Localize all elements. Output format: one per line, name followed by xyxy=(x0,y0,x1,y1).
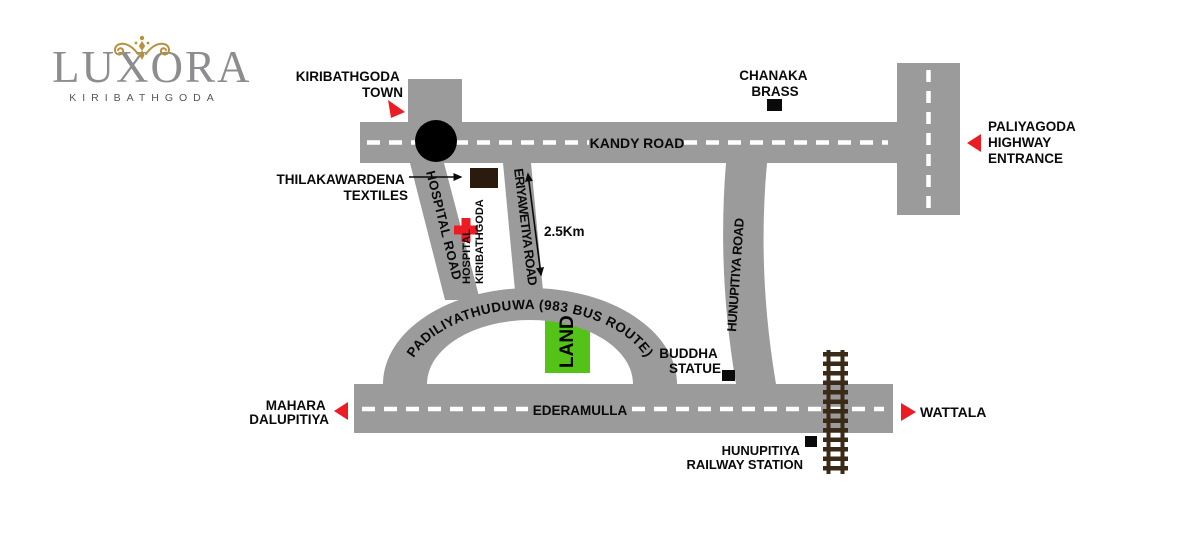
label-mahara-dalupitiya: MAHARA DALUPITIYA xyxy=(249,398,329,427)
road-town-stub xyxy=(408,79,462,124)
map-container: LUXORA KIRIBATHGODA xyxy=(0,0,1200,540)
label-buddha-statue: BUDDHA STATUE xyxy=(659,346,721,376)
label-chanaka-brass: CHANAKA BRASS xyxy=(739,68,811,99)
wattala-arrow-icon xyxy=(901,403,916,421)
highway-arrow-icon xyxy=(967,134,981,152)
land-label: LAND xyxy=(557,315,578,368)
label-kandy-road: KANDY ROAD xyxy=(590,135,685,151)
label-ederamulla-road: EDERAMULLA xyxy=(533,403,628,418)
label-paliyagoda-highway: PALIYAGODA HIGHWAY ENTRANCE xyxy=(988,119,1079,166)
map-canvas: KIRIBATHGODA TOWN THILAKAWARDENA TEXTILE… xyxy=(0,0,1200,540)
label-hospital-kiribathgoda: HOSPITAL KIRIBATHGODA xyxy=(461,199,486,284)
label-wattala: WATTALA xyxy=(920,404,986,420)
textiles-building xyxy=(470,168,498,188)
label-thilakawardena-textiles: THILAKAWARDENA TEXTILES xyxy=(276,172,408,203)
buddha-square-marker xyxy=(722,370,735,381)
station-square-marker xyxy=(805,436,817,447)
mahara-arrow-icon xyxy=(334,402,348,420)
roundabout-marker xyxy=(415,120,457,162)
town-arrow-icon xyxy=(388,100,405,118)
brass-square-marker xyxy=(767,99,782,111)
label-kiribathgoda-town: KIRIBATHGODA TOWN xyxy=(296,69,403,100)
railway-track xyxy=(823,350,848,474)
label-railway-station: HUNUPITIYA RAILWAY STATION xyxy=(686,443,803,472)
label-distance: 2.5Km xyxy=(544,224,585,239)
